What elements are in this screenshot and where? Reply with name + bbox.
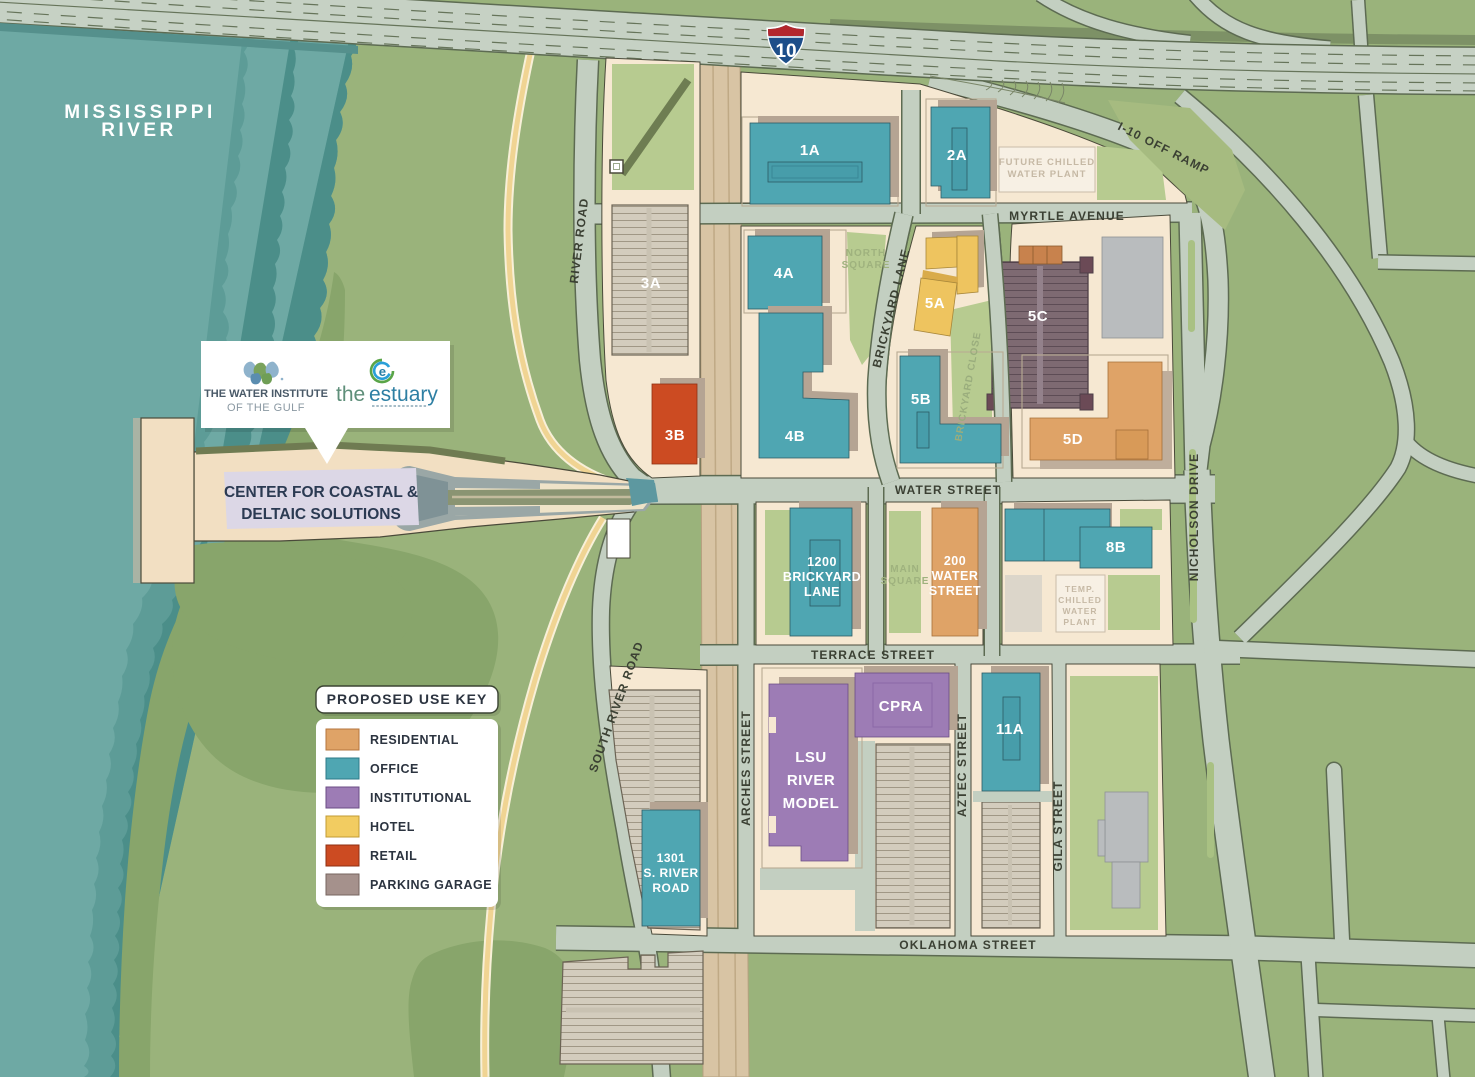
svg-text:WATER STREET: WATER STREET [895,483,1001,497]
svg-text:WATER PLANT: WATER PLANT [1008,169,1087,180]
svg-text:10: 10 [775,41,796,62]
svg-text:5B: 5B [911,391,931,408]
svg-text:GILA STREET: GILA STREET [1051,781,1065,872]
svg-text:5D: 5D [1063,431,1083,448]
svg-text:1A: 1A [800,142,820,159]
svg-text:1301: 1301 [657,851,686,865]
svg-text:PROPOSED USE KEY: PROPOSED USE KEY [327,691,488,707]
svg-text:4B: 4B [785,428,805,445]
svg-text:CENTER FOR COASTAL &: CENTER FOR COASTAL & [224,484,418,501]
svg-text:ROAD: ROAD [652,881,689,895]
svg-text:5A: 5A [925,295,945,312]
svg-text:HOTEL: HOTEL [370,820,415,834]
svg-text:4A: 4A [774,265,794,282]
svg-text:TEMP.: TEMP. [1065,584,1095,594]
svg-text:RIVER: RIVER [787,772,835,789]
svg-text:STREET: STREET [929,584,981,598]
svg-text:THE WATER INSTITUTE: THE WATER INSTITUTE [204,388,328,400]
svg-text:AZTEC STREET: AZTEC STREET [955,713,969,817]
svg-text:MODEL: MODEL [783,795,840,812]
svg-text:RETAIL: RETAIL [370,849,417,863]
svg-text:NORTH: NORTH [846,248,887,259]
svg-text:11A: 11A [996,721,1024,738]
svg-text:1200: 1200 [807,555,837,569]
svg-text:MAIN: MAIN [890,564,920,575]
svg-text:LSU: LSU [795,749,827,766]
svg-text:CHILLED: CHILLED [1058,595,1102,605]
svg-text:CPRA: CPRA [879,698,924,715]
svg-text:e: e [379,364,386,379]
svg-text:TERRACE STREET: TERRACE STREET [811,648,935,662]
svg-text:8B: 8B [1106,539,1126,556]
svg-text:SQUARE: SQUARE [842,260,891,271]
svg-text:OFFICE: OFFICE [370,762,419,776]
svg-text:LANE: LANE [804,585,840,599]
svg-text:estuary: estuary [369,383,438,406]
svg-text:PARKING GARAGE: PARKING GARAGE [370,878,492,892]
svg-text:5C: 5C [1028,308,1048,325]
svg-text:ARCHES STREET: ARCHES STREET [739,710,753,826]
svg-text:BRICKYARD: BRICKYARD [783,570,861,584]
svg-text:DELTAIC SOLUTIONS: DELTAIC SOLUTIONS [241,506,401,523]
svg-text:WATER: WATER [932,569,979,583]
svg-text:200: 200 [944,554,966,568]
svg-text:PLANT: PLANT [1063,617,1096,627]
svg-text:3A: 3A [641,275,661,292]
svg-text:OF THE GULF: OF THE GULF [227,402,305,414]
svg-text:NICHOLSON DRIVE: NICHOLSON DRIVE [1187,453,1201,582]
svg-text:S. RIVER: S. RIVER [643,866,698,880]
svg-text:RESIDENTIAL: RESIDENTIAL [370,733,459,747]
svg-text:2A: 2A [947,147,967,164]
svg-text:FUTURE CHILLED: FUTURE CHILLED [999,157,1095,168]
svg-text:3B: 3B [665,427,685,444]
svg-text:MYRTLE AVENUE: MYRTLE AVENUE [1009,209,1125,223]
svg-text:INSTITUTIONAL: INSTITUTIONAL [370,791,472,805]
svg-text:OKLAHOMA STREET: OKLAHOMA STREET [899,938,1036,952]
svg-text:WATER: WATER [1062,606,1097,616]
svg-text:SQUARE: SQUARE [881,576,930,587]
svg-text:RIVER: RIVER [101,120,177,141]
svg-text:the: the [336,383,365,406]
